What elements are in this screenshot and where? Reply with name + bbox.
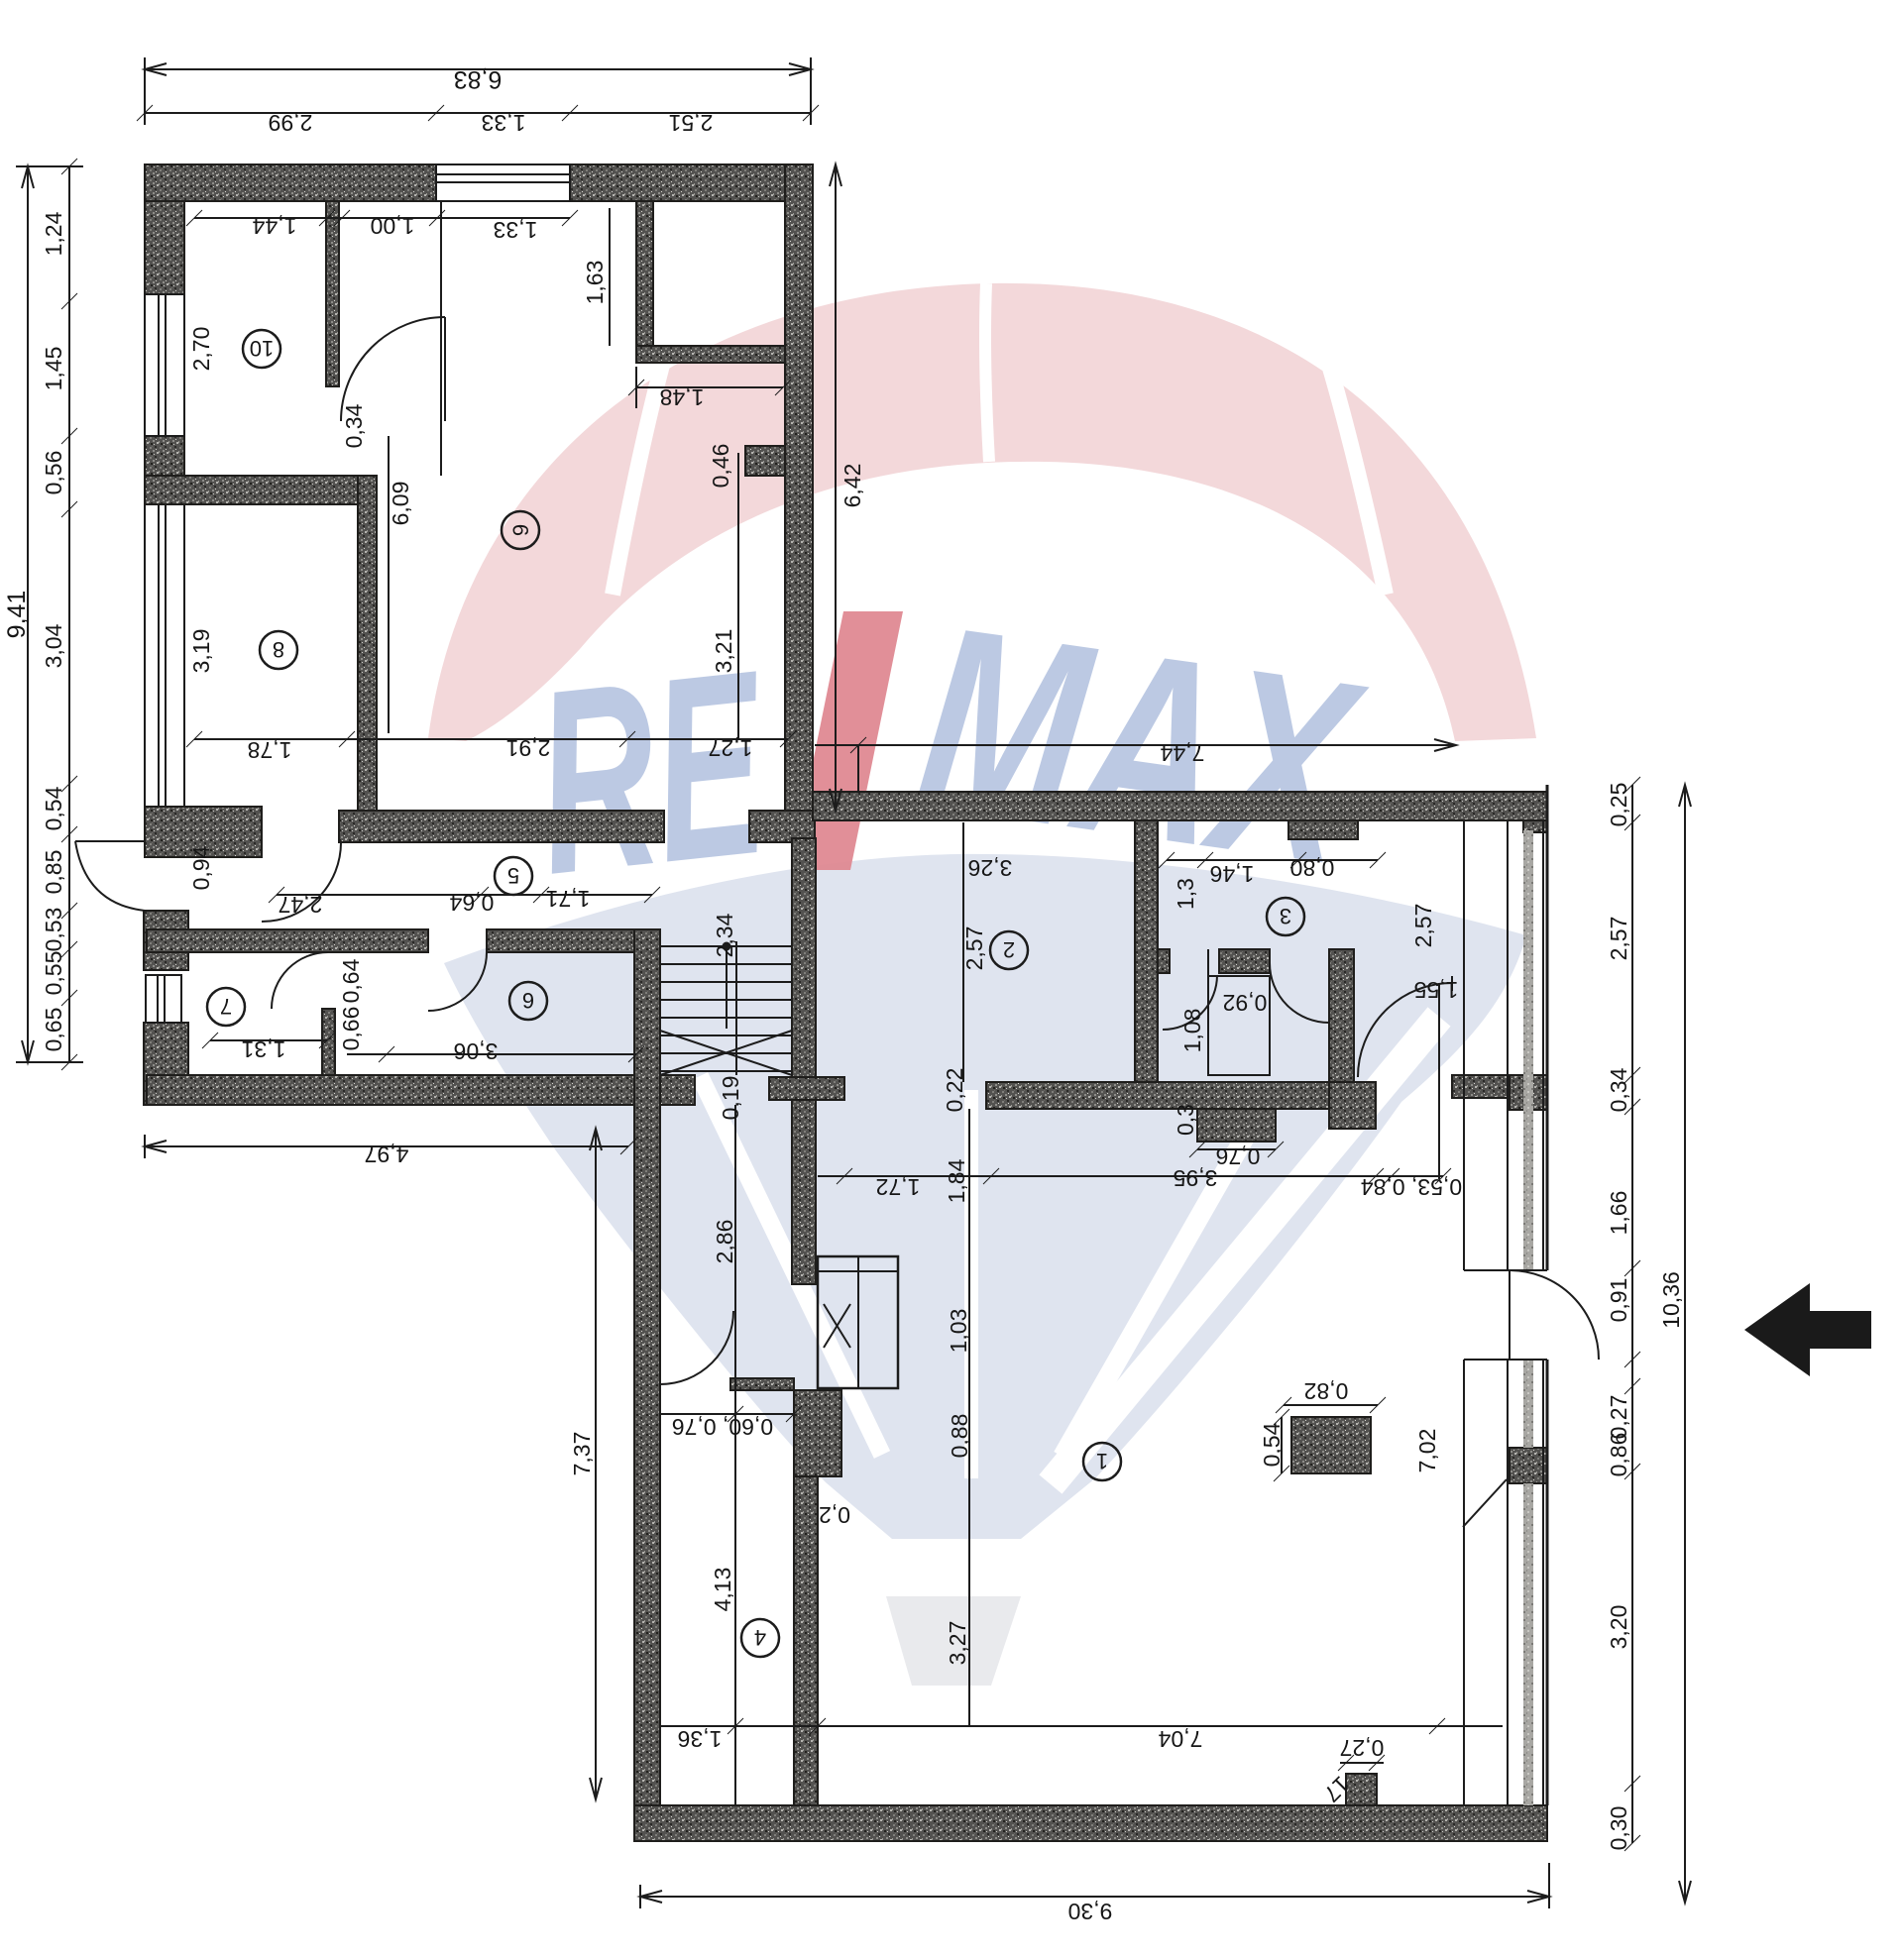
svg-text:1,48: 1,48 [660,384,705,410]
svg-text:1,08: 1,08 [1179,1009,1205,1053]
svg-text:0,88: 0,88 [947,1414,972,1459]
svg-text:0,54: 0,54 [1259,1422,1285,1467]
svg-text:4,13: 4,13 [710,1568,735,1612]
svg-text:3,27: 3,27 [945,1621,970,1666]
svg-text:0,64: 0,64 [449,890,494,916]
svg-text:1,36: 1,36 [678,1726,723,1752]
svg-text:1,31: 1,31 [242,1036,286,1062]
svg-text:0,66: 0,66 [338,1007,364,1051]
svg-text:0,53: 0,53 [41,908,66,952]
svg-text:1,27: 1,27 [709,735,753,761]
svg-text:1: 1 [1096,1449,1108,1473]
svg-text:1,33: 1,33 [494,217,538,243]
svg-text:3,19: 3,19 [188,629,214,674]
svg-text:0,19: 0,19 [718,1076,743,1121]
svg-text:1,55: 1,55 [1414,977,1459,1003]
svg-text:6,09: 6,09 [388,482,413,526]
svg-text:7,37: 7,37 [569,1432,595,1476]
svg-text:0,76: 0,76 [1216,1143,1261,1169]
svg-text:0,91: 0,91 [1606,1278,1631,1323]
svg-text:0,30: 0,30 [1606,1806,1631,1851]
svg-text:1,24: 1,24 [41,211,66,256]
svg-text:10,36: 10,36 [1658,1271,1684,1329]
svg-text:3,21: 3,21 [711,629,736,674]
svg-text:1,45: 1,45 [41,347,66,391]
svg-text:2,57: 2,57 [961,926,987,971]
svg-text:2,70: 2,70 [188,327,214,372]
svg-text:1,03: 1,03 [946,1309,971,1354]
svg-text:9: 9 [508,524,533,536]
svg-text:1,44: 1,44 [252,213,296,239]
svg-text:9,41: 9,41 [3,591,31,639]
svg-text:1,63: 1,63 [582,261,608,305]
svg-text:0,85: 0,85 [41,850,66,895]
svg-text:3,20: 3,20 [1606,1605,1631,1650]
svg-text:RE: RE [524,614,782,929]
svg-text:0,80: 0,80 [1290,855,1335,881]
svg-text:3,26: 3,26 [968,855,1013,881]
svg-text:7,04: 7,04 [1158,1726,1202,1752]
svg-text:2,34: 2,34 [712,913,737,957]
svg-text:0,27: 0,27 [1340,1735,1385,1761]
svg-text:1,78: 1,78 [248,737,292,763]
svg-text:0,22: 0,22 [942,1068,967,1113]
svg-text:0,25: 0,25 [1606,783,1631,827]
svg-text:1,00: 1,00 [371,213,415,239]
svg-text:2,86: 2,86 [712,1220,737,1264]
svg-text:3,95: 3,95 [1174,1165,1218,1191]
svg-text:0,54: 0,54 [41,786,66,830]
svg-text:7: 7 [220,994,232,1019]
svg-text:8: 8 [273,637,284,662]
svg-text:5: 5 [507,863,519,888]
svg-text:6,83: 6,83 [454,65,503,93]
svg-text:0,34: 0,34 [1606,1067,1631,1112]
svg-text:0,53, 0,84: 0,53, 0,84 [1361,1174,1463,1200]
svg-text:1,46: 1,46 [1210,861,1255,887]
svg-text:3: 3 [1280,904,1291,928]
svg-text:0,60, 0,76: 0,60, 0,76 [672,1414,773,1440]
svg-text:0,34: 0,34 [341,403,367,448]
svg-text:4,97: 4,97 [365,1142,409,1167]
svg-text:0,94: 0,94 [188,845,214,890]
svg-text:0,65: 0,65 [41,1008,66,1052]
svg-text:4: 4 [754,1625,766,1650]
svg-text:0,92: 0,92 [1223,990,1268,1016]
svg-text:0,86: 0,86 [1606,1433,1631,1477]
svg-text:0,82: 0,82 [1304,1378,1349,1404]
svg-text:9,30: 9,30 [1068,1899,1113,1924]
svg-text:0,55: 0,55 [41,951,66,996]
svg-text:2: 2 [1003,937,1015,962]
svg-text:2,57: 2,57 [1410,904,1436,948]
svg-text:2,91: 2,91 [506,735,551,761]
svg-text:2,99: 2,99 [269,110,313,136]
svg-text:1,3: 1,3 [1173,878,1198,910]
svg-text:0,56: 0,56 [41,451,66,495]
svg-text:7,02: 7,02 [1414,1429,1440,1473]
svg-text:1,71: 1,71 [546,886,591,912]
svg-text:0,3: 0,3 [1173,1104,1198,1136]
svg-text:3,04: 3,04 [41,623,66,668]
svg-text:10: 10 [250,336,274,361]
svg-text:1,33: 1,33 [482,110,526,136]
svg-text:1,84: 1,84 [944,1158,969,1203]
svg-text:0,64: 0,64 [338,958,364,1003]
svg-text:7,44: 7,44 [1160,740,1204,766]
svg-text:3,06: 3,06 [454,1038,499,1064]
svg-text:2,47: 2,47 [279,892,323,918]
svg-text:6: 6 [522,988,534,1013]
svg-text:2,51: 2,51 [669,110,714,136]
svg-text:6,42: 6,42 [840,464,865,508]
svg-text:1,72: 1,72 [876,1174,921,1200]
svg-text:0,46: 0,46 [708,444,733,489]
svg-text:1,66: 1,66 [1606,1191,1631,1236]
svg-text:2,57: 2,57 [1606,917,1631,961]
svg-text:0,2: 0,2 [819,1502,850,1528]
